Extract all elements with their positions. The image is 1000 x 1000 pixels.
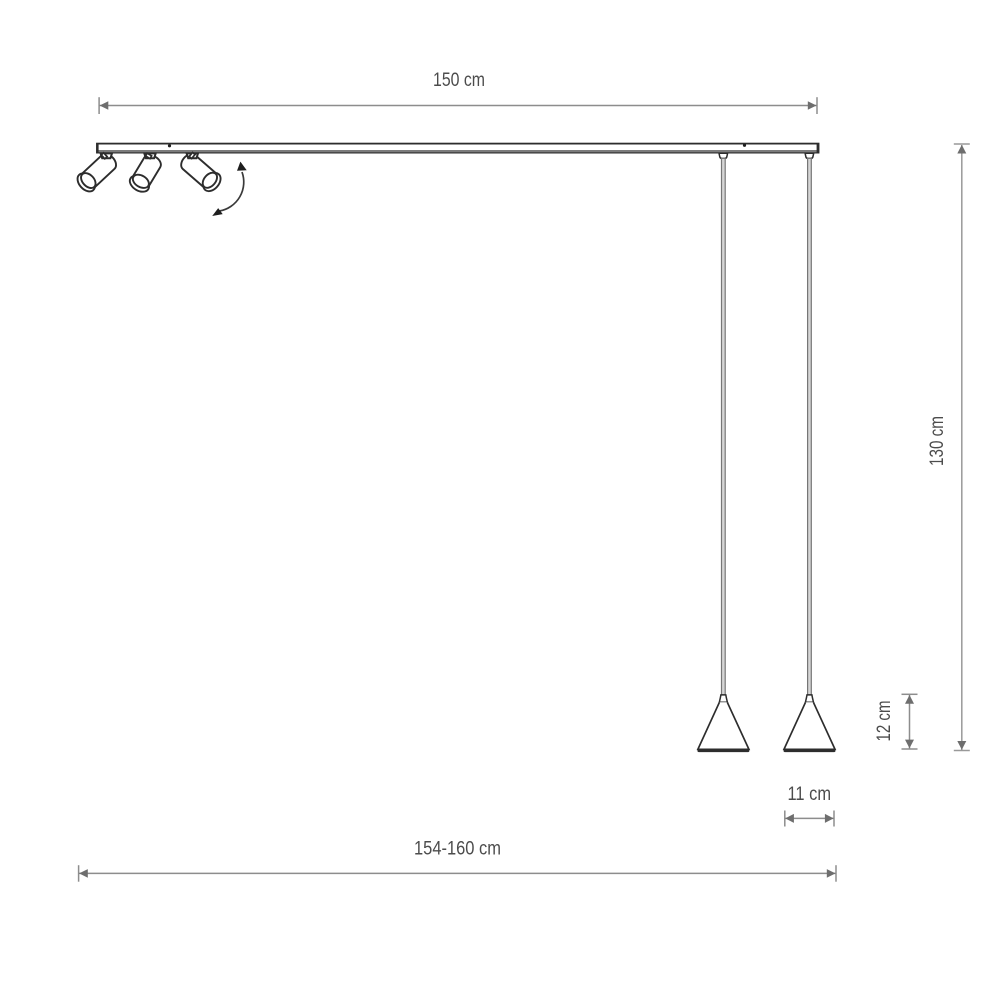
svg-text:12 cm: 12 cm <box>873 701 895 742</box>
svg-text:154-160 cm: 154-160 cm <box>414 838 501 860</box>
svg-text:11 cm: 11 cm <box>788 783 832 805</box>
svg-text:150 cm: 150 cm <box>433 69 485 91</box>
svg-text:130 cm: 130 cm <box>926 416 948 466</box>
